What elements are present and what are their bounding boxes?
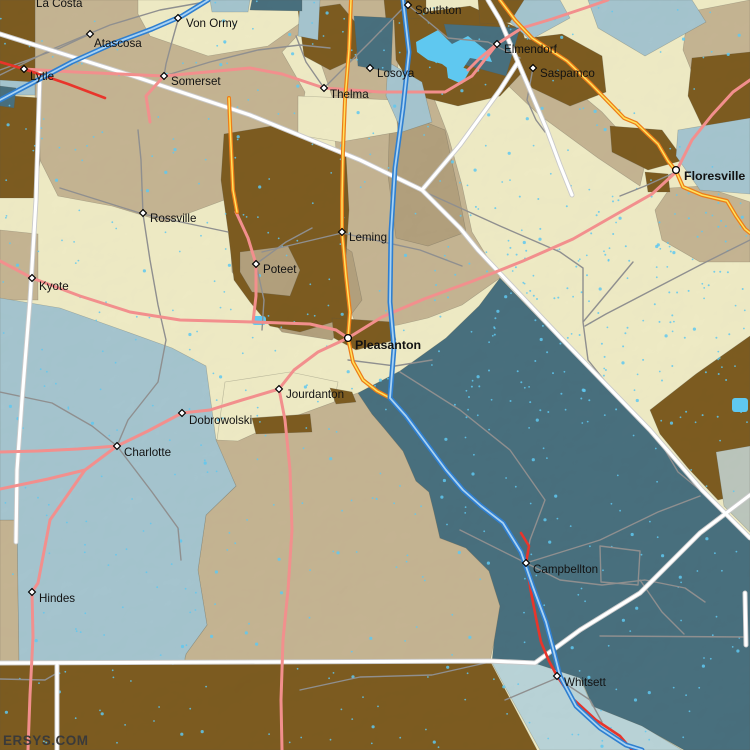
town-label-pleasanton: Pleasanton [355, 338, 421, 352]
town-label-poteet: Poteet [263, 263, 297, 276]
town-jourdanton: Jourdanton [276, 386, 344, 401]
town-label-losoya: Losoya [377, 67, 415, 80]
town-label-kyote: Kyote [39, 280, 69, 293]
watermark: ERSYS.COM [3, 733, 89, 748]
city-marker-floresville [673, 167, 680, 174]
map-canvas[interactable]: La CostaVon OrmyAtascosaLytleSomersetSou… [0, 0, 750, 750]
town-label-jourdanton: Jourdanton [286, 388, 344, 401]
map-root[interactable]: La CostaVon OrmyAtascosaLytleSomersetSou… [0, 0, 750, 750]
town-label-somerset: Somerset [171, 75, 221, 88]
town-elmendorf: Elmendorf [494, 41, 558, 56]
town-label-charlotte: Charlotte [124, 446, 171, 459]
town-label-campbellton: Campbellton [533, 563, 598, 576]
town-label-floresville: Floresville [684, 169, 745, 183]
town-label-thelma: Thelma [330, 88, 369, 101]
town-label-atascosa: Atascosa [94, 37, 142, 50]
city-marker-pleasanton [345, 335, 352, 342]
town-label-whitsett: Whitsett [564, 676, 607, 689]
town-campbellton: Campbellton [523, 560, 598, 576]
town-saspamco: Saspamco [530, 65, 595, 80]
town-label-elmendorf: Elmendorf [504, 43, 558, 56]
town-label-southton: Southton [415, 4, 461, 17]
town-floresville: Floresville [673, 167, 746, 183]
town-la-costa: La Costa [36, 0, 83, 10]
town-label-dobrowolski: Dobrowolski [189, 414, 252, 427]
town-label-rossville: Rossville [150, 212, 196, 225]
town-label-saspamco: Saspamco [540, 67, 595, 80]
town-label-hindes: Hindes [39, 592, 75, 605]
town-label-von-ormy: Von Ormy [186, 17, 238, 30]
town-label-la-costa: La Costa [36, 0, 83, 10]
town-label-lytle: Lytle [30, 70, 54, 83]
town-label-leming: Leming [349, 231, 387, 244]
town-pleasanton: Pleasanton [345, 335, 422, 352]
